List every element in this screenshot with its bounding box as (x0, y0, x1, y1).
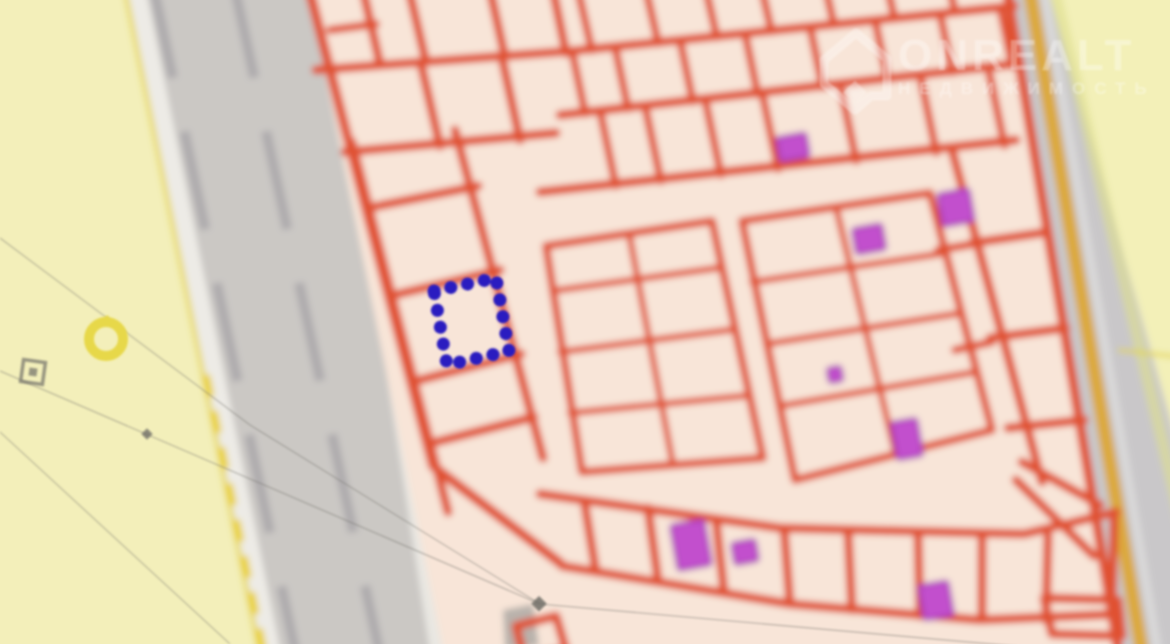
svg-text:ONREALT: ONREALT (898, 31, 1135, 80)
svg-text:НЕДВИЖИМОСТЬ: НЕДВИЖИМОСТЬ (898, 79, 1156, 98)
